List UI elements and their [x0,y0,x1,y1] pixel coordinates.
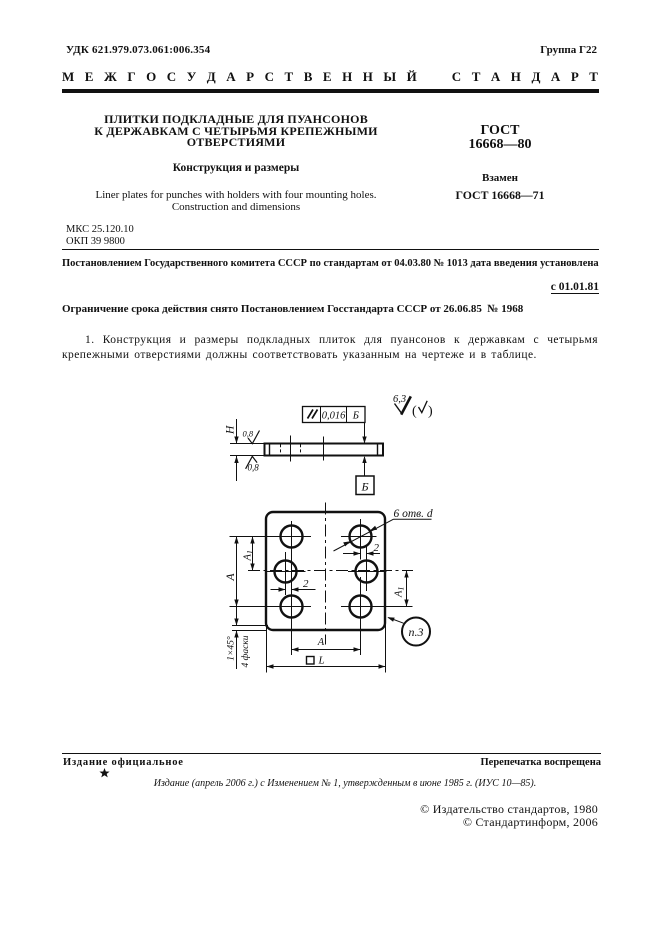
svg-text:A: A [225,573,237,582]
svg-text:0,8: 0,8 [243,429,254,439]
svg-text:Б: Б [352,411,359,422]
svg-text:): ) [428,404,433,419]
svg-text:0,016: 0,016 [322,411,346,422]
svg-text:1×45°: 1×45° [226,636,237,661]
svg-text:H: H [225,425,237,435]
svg-text:(: ( [412,404,417,419]
svg-text:A1: A1 [243,550,255,561]
svg-text:6 отв. d: 6 отв. d [394,508,433,520]
svg-text:L: L [318,655,325,667]
svg-text:A1: A1 [394,587,406,598]
svg-text:4 фаски: 4 фаски [240,635,251,667]
svg-text:п.3: п.3 [409,625,424,639]
svg-text:Б: Б [360,480,368,494]
svg-text:2: 2 [303,578,309,590]
svg-text:0,8: 0,8 [248,463,260,473]
svg-text:A: A [317,637,325,648]
svg-text:2: 2 [374,542,380,554]
